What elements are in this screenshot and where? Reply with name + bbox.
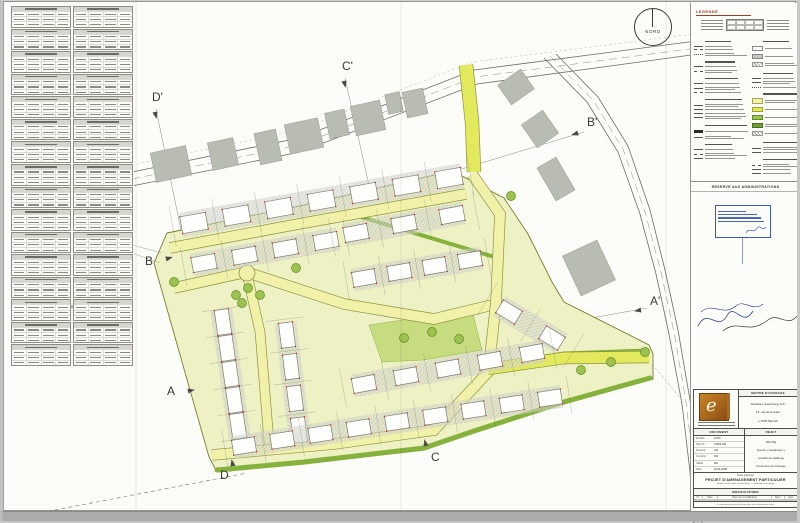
lot-coordinate-table bbox=[73, 299, 133, 321]
legend-section-header bbox=[694, 40, 748, 44]
lot-coordinate-table bbox=[73, 344, 133, 366]
legend-section-header bbox=[694, 77, 748, 81]
lot-coordinate-table bbox=[11, 141, 71, 163]
lot-coordinate-table bbox=[73, 254, 133, 276]
object-line-4: Commune de Frisange bbox=[745, 464, 797, 468]
title-block: e MAITRE D'OUVRAGE Kikuoka Luxembourg S.… bbox=[693, 389, 798, 508]
lot-coordinate-table bbox=[11, 51, 71, 73]
legend-item bbox=[752, 131, 800, 137]
lot-coordinate-table bbox=[11, 164, 71, 186]
approval-stamp bbox=[715, 205, 771, 238]
company-logo: e bbox=[694, 390, 739, 428]
schematic-annotations-right bbox=[767, 20, 789, 30]
scan-edge-left bbox=[0, 0, 4, 521]
logo-icon: e bbox=[699, 393, 729, 421]
modifications-header: MODIFICATIONS bbox=[694, 489, 797, 496]
legend-item bbox=[694, 149, 748, 150]
lot-coordinate-table bbox=[11, 6, 71, 28]
lot-coordinate-table bbox=[73, 6, 133, 28]
company-address bbox=[698, 421, 735, 427]
lot-coordinate-table bbox=[73, 141, 133, 163]
fold-crease bbox=[400, 2, 402, 510]
legend-item bbox=[752, 147, 800, 150]
legend-schematic bbox=[701, 19, 796, 31]
legend-item bbox=[694, 70, 748, 73]
administrations-box bbox=[691, 192, 800, 300]
legend-item bbox=[694, 92, 748, 93]
lot-coordinate-table bbox=[11, 209, 71, 231]
legend-item bbox=[752, 152, 800, 153]
lot-coordinate-table bbox=[11, 277, 71, 299]
lot-coordinate-table bbox=[11, 254, 71, 276]
legend-item bbox=[752, 78, 800, 79]
client-city: L-7535 Mersch bbox=[739, 419, 797, 423]
coordinate-tables-panel bbox=[10, 5, 134, 305]
modifications-section: MODIFICATIONS N°DateObjet de la modifica… bbox=[694, 489, 797, 501]
lot-coordinate-table bbox=[11, 119, 71, 141]
fold-crease bbox=[665, 2, 667, 510]
project-title-section: Partie graphique PROJET D'AMENAGEMENT PA… bbox=[694, 473, 797, 489]
object-line-2: lieu-dit « Gewannen » bbox=[745, 448, 797, 452]
legend-item bbox=[694, 83, 748, 84]
stamp-signature-icon bbox=[745, 224, 767, 236]
legend-item bbox=[752, 123, 800, 129]
legend-section-header bbox=[752, 92, 800, 96]
north-needle-icon bbox=[652, 9, 653, 27]
lot-coordinate-table bbox=[73, 277, 133, 299]
document-header: DOCUMENT bbox=[694, 429, 744, 436]
legend-section-header bbox=[694, 143, 748, 147]
legend-item bbox=[752, 107, 800, 113]
lot-coordinate-table bbox=[73, 96, 133, 118]
legend-item bbox=[752, 169, 800, 170]
drawing-sheet: AA'BB'CC'DD' NORD LEGENDE RESERVE AUX AD… bbox=[3, 1, 796, 511]
lot-coordinate-table bbox=[11, 29, 71, 51]
legend-title: LEGENDE bbox=[696, 9, 751, 16]
signatures bbox=[693, 300, 800, 334]
section-marker-c: C bbox=[431, 450, 440, 464]
lot-coordinate-table bbox=[73, 187, 133, 209]
legend-section-header bbox=[694, 98, 748, 102]
legend-item bbox=[694, 158, 748, 159]
administrations-header: RESERVE AUX ADMINISTRATIONS bbox=[691, 182, 800, 192]
legend-items bbox=[694, 35, 797, 176]
object-info: OBJET PAP Mg lieu-dit « Gewannen » Local… bbox=[745, 429, 797, 472]
legend-item bbox=[752, 164, 800, 167]
legend-section-header bbox=[752, 72, 800, 76]
legend-item bbox=[752, 87, 800, 88]
object-line-1: PAP Mg bbox=[745, 440, 797, 444]
legend-item bbox=[752, 81, 800, 84]
legend-panel: LEGENDE RESERVE AUX ADMINISTRATIONS bbox=[690, 3, 800, 513]
lot-coordinate-table bbox=[73, 322, 133, 344]
section-marker-a: A bbox=[167, 384, 175, 398]
schematic-grid bbox=[726, 19, 764, 31]
legend-item bbox=[694, 66, 748, 67]
document-row: Date20.06.2008 bbox=[694, 467, 744, 472]
legend-section-header bbox=[752, 40, 800, 44]
lot-coordinate-table bbox=[11, 322, 71, 344]
lot-coordinate-table bbox=[73, 232, 133, 254]
legend-item bbox=[694, 46, 748, 47]
scan-edge-bottom bbox=[0, 512, 800, 521]
legend-item bbox=[694, 130, 748, 134]
legend-item bbox=[694, 153, 748, 156]
legend-item bbox=[694, 104, 748, 107]
lot-coordinate-table bbox=[11, 344, 71, 366]
legend-item bbox=[752, 54, 800, 60]
legend-section-header bbox=[752, 141, 800, 145]
legend-item bbox=[694, 49, 748, 50]
section-marker-a-prime: A' bbox=[650, 294, 660, 308]
legend-item bbox=[752, 46, 800, 52]
scan-edge-top bbox=[0, 0, 800, 1]
section-marker-d: D bbox=[220, 468, 229, 482]
client-street: 16, rue de la Gare bbox=[739, 410, 797, 414]
lot-coordinate-table bbox=[11, 187, 71, 209]
project-title: PROJET D'AMENAGEMENT PARTICULIER bbox=[694, 478, 797, 482]
legend-item bbox=[694, 113, 748, 114]
logo-bar-icon bbox=[727, 393, 730, 419]
legend-item bbox=[752, 115, 800, 121]
legend-item bbox=[694, 136, 748, 139]
schematic-annotations-left bbox=[701, 20, 723, 30]
legend-item bbox=[752, 62, 800, 68]
lot-coordinate-table bbox=[73, 29, 133, 51]
legend-item bbox=[694, 53, 748, 56]
section-marker-c-prime: C' bbox=[342, 59, 353, 73]
section-marker-b-prime: B' bbox=[587, 115, 597, 129]
legend-item bbox=[694, 87, 748, 90]
lot-coordinate-table bbox=[73, 164, 133, 186]
project-subtitle: portant sur des fonds sis à Hellange — C… bbox=[694, 483, 797, 485]
section-marker-b: B bbox=[145, 254, 153, 268]
lot-coordinate-table bbox=[11, 96, 71, 118]
lot-coordinate-table bbox=[73, 51, 133, 73]
legend-section-header bbox=[752, 158, 800, 162]
legend-section-header bbox=[694, 60, 748, 64]
fold-crease bbox=[135, 2, 137, 510]
lot-coordinate-table bbox=[11, 232, 71, 254]
legend-item bbox=[752, 98, 800, 104]
lot-coordinate-table bbox=[73, 209, 133, 231]
object-header: OBJET bbox=[745, 429, 797, 436]
titleblock-footer: Ce document ne peut être reproduit sans … bbox=[694, 501, 797, 507]
lot-coordinate-table bbox=[73, 119, 133, 141]
client-header: MAITRE D'OUVRAGE bbox=[739, 390, 797, 397]
stamp-leader-line bbox=[742, 238, 743, 264]
section-marker-d-prime: D' bbox=[152, 90, 163, 104]
object-line-3: Localité de Hellange bbox=[745, 456, 797, 460]
administrations-section: RESERVE AUX ADMINISTRATIONS bbox=[691, 181, 800, 300]
lot-coordinate-table bbox=[73, 74, 133, 96]
lot-coordinate-table bbox=[11, 74, 71, 96]
document-info: DOCUMENT Echelle1/250Plan N°21563-001Des… bbox=[694, 429, 745, 472]
client-name: Kikuoka Luxembourg S.A. bbox=[739, 402, 797, 406]
client-info: MAITRE D'OUVRAGE Kikuoka Luxembourg S.A.… bbox=[739, 390, 797, 428]
legend-item bbox=[752, 173, 800, 174]
lot-coordinate-table bbox=[11, 299, 71, 321]
legend-item bbox=[694, 116, 748, 119]
project-part-label: Partie graphique bbox=[694, 475, 797, 477]
legend-item bbox=[694, 109, 748, 110]
legend-section-header bbox=[694, 124, 748, 128]
